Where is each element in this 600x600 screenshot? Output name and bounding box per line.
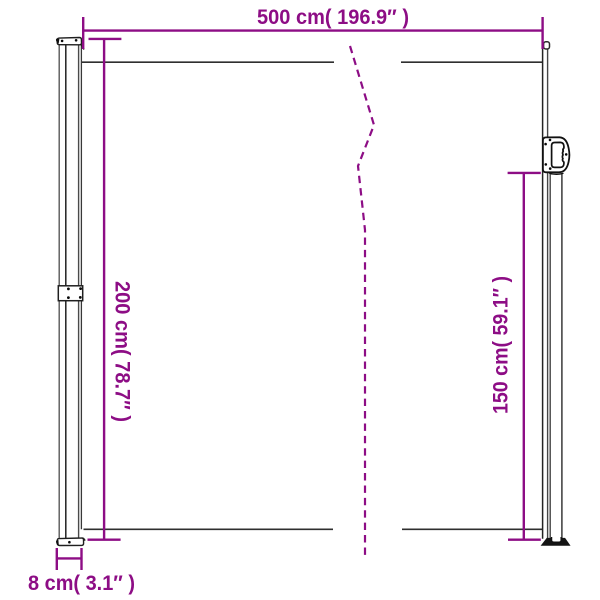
svg-text:8 cm( 3.1″ ): 8 cm( 3.1″ )	[28, 571, 135, 595]
svg-text:150 cm( 59.1″ ): 150 cm( 59.1″ )	[490, 276, 513, 414]
svg-text:500 cm( 196.9″ ): 500 cm( 196.9″ )	[257, 5, 409, 29]
svg-text:200 cm( 78.7″ ): 200 cm( 78.7″ )	[110, 281, 133, 422]
